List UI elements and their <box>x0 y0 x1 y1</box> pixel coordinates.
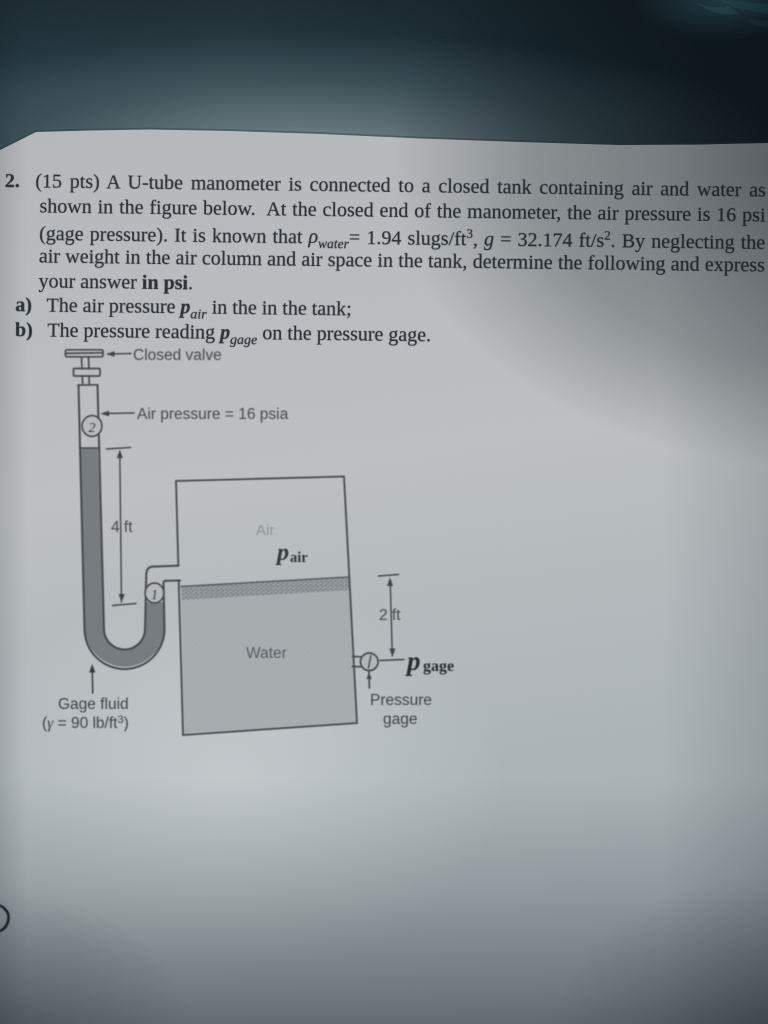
svg-text:gage: gage <box>423 658 454 675</box>
svg-text:Water: Water <box>246 645 287 662</box>
svg-text:4 ft: 4 ft <box>111 519 133 536</box>
svg-text:(γ = 90 lb/ft3): (γ = 90 lb/ft3) <box>42 714 129 732</box>
svg-text:Air pressure = 16 psia: Air pressure = 16 psia <box>137 406 289 423</box>
svg-text:1: 1 <box>151 588 158 603</box>
svg-text:2 ft: 2 ft <box>379 607 401 624</box>
svg-text:2: 2 <box>89 421 96 436</box>
svg-text:Pressure: Pressure <box>370 692 432 709</box>
svg-text:p: p <box>405 646 421 676</box>
svg-text:Gage fluid: Gage fluid <box>58 696 129 713</box>
svg-text:gage: gage <box>383 711 417 728</box>
svg-text:p: p <box>275 540 289 566</box>
svg-text:Air: Air <box>256 522 274 539</box>
svg-text:air: air <box>290 550 308 566</box>
svg-text:Closed valve: Closed valve <box>133 347 222 364</box>
